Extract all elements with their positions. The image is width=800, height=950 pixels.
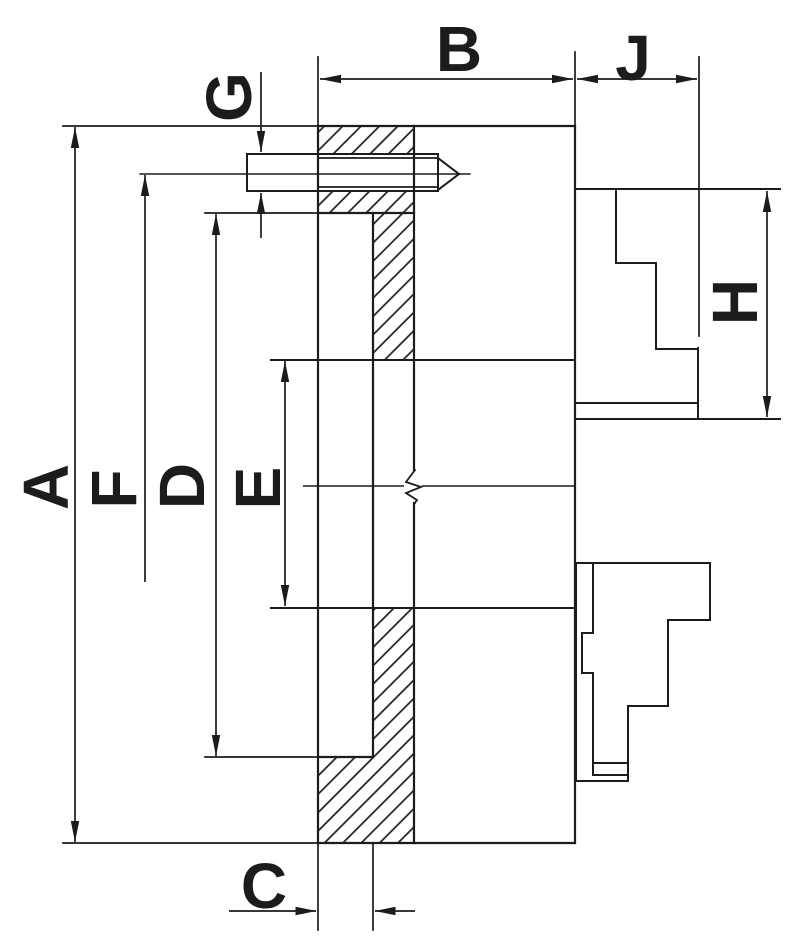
- dimension-c: C: [229, 850, 415, 922]
- bolt-body-outline: [247, 154, 438, 191]
- top-jaw-steps: [616, 189, 698, 349]
- dim-j-arrow-right: [676, 75, 697, 83]
- dim-c-arrow-left: [375, 907, 396, 915]
- dimension-h: H: [699, 191, 771, 417]
- bottom-jaw-outline: [576, 563, 710, 781]
- dim-b-arrow-right: [552, 75, 573, 83]
- mounting-bolt: [140, 154, 470, 191]
- dim-label-e: E: [222, 467, 294, 510]
- hatch-flange-lower-strip: [318, 191, 414, 213]
- dimension-e: E: [222, 361, 294, 606]
- dim-f-arrow-up: [141, 175, 149, 196]
- dim-h-arrow-down: [763, 396, 771, 417]
- chuck-technical-drawing: A F D E G B J: [0, 0, 800, 950]
- drawing-canvas: A F D E G B J: [0, 0, 800, 950]
- dim-d-arrow-up: [212, 214, 220, 235]
- dimension-a: A: [10, 127, 82, 842]
- bottom-jaw: [576, 563, 710, 781]
- dim-e-arrow-down: [281, 585, 289, 606]
- dim-a-arrow-up: [71, 127, 79, 148]
- bottom-jaw-guide-notch: [582, 563, 593, 775]
- dim-g-arrow-down: [257, 131, 265, 152]
- dim-label-b: B: [436, 13, 482, 85]
- hatch-upper-wall: [373, 213, 414, 360]
- dim-e-arrow-up: [281, 361, 289, 382]
- dim-c-arrow-right: [296, 907, 317, 915]
- dim-label-c: C: [241, 850, 287, 922]
- dim-j-arrow-left: [577, 75, 598, 83]
- dim-b-arrow-left: [320, 75, 341, 83]
- dimension-d: D: [146, 214, 220, 756]
- chuck-body-outline: [271, 126, 575, 843]
- dim-label-j: J: [615, 22, 651, 94]
- dim-label-g: G: [193, 72, 265, 122]
- dim-label-f: F: [78, 469, 150, 508]
- dimension-b: B: [320, 13, 573, 85]
- dim-a-arrow-down: [71, 821, 79, 842]
- dim-h-arrow-up: [763, 191, 771, 212]
- section-hatching: [318, 126, 414, 843]
- hatch-lower-wall: [373, 608, 414, 843]
- dim-d-arrow-down: [212, 735, 220, 756]
- dim-label-a: A: [10, 464, 82, 510]
- dimension-f: F: [78, 175, 150, 582]
- break-line-zigzag: [406, 470, 421, 503]
- dim-label-d: D: [146, 463, 218, 509]
- dim-label-h: H: [699, 279, 771, 325]
- dimension-j: J: [577, 22, 697, 94]
- hatch-bottom-hub: [318, 757, 373, 843]
- hatch-flange-top-strip: [318, 126, 414, 154]
- dim-g-arrow-up: [257, 193, 265, 214]
